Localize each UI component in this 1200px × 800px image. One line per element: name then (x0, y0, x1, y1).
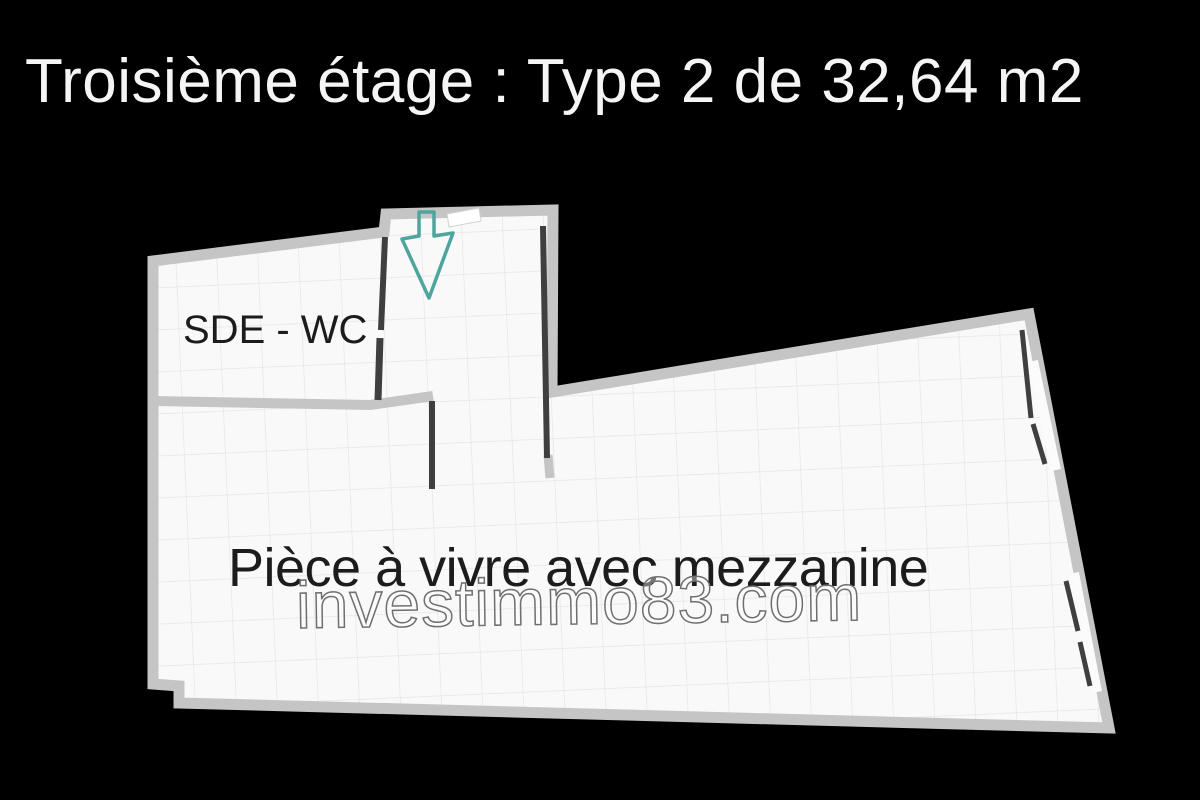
hall-right-wall (543, 226, 547, 458)
watermark: investimmo83.com (296, 564, 863, 638)
floorplan-drawing (0, 0, 1200, 800)
floorplan-page: Troisième étage : Type 2 de 32,64 m2 (0, 0, 1200, 800)
hall-right-wall-lower (548, 455, 550, 478)
room-label-sde-wc: SDE - WC (183, 310, 367, 350)
hall-left-wall-lower (378, 338, 380, 400)
hall-left-wall-upper (381, 237, 385, 330)
